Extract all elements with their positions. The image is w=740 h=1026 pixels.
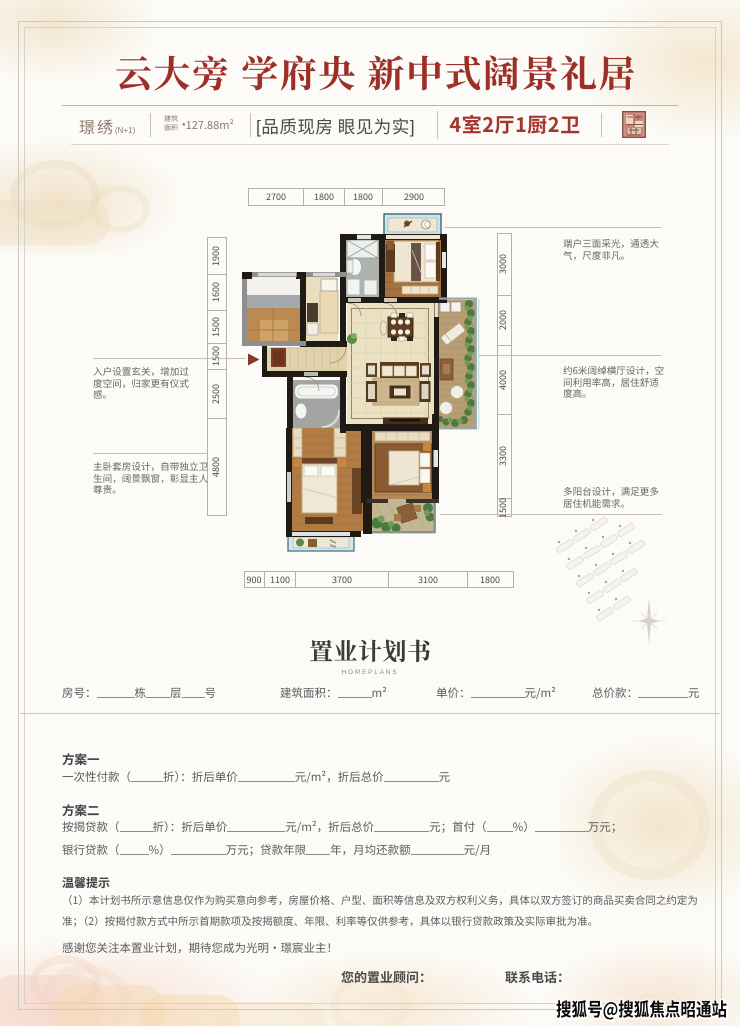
svg-text:900: 900	[247, 573, 262, 586]
svg-text:2500: 2500	[209, 384, 222, 404]
svg-text:2900: 2900	[404, 190, 424, 203]
svg-text:2700: 2700	[266, 190, 286, 203]
svg-text:3000: 3000	[496, 254, 509, 274]
svg-text:1500: 1500	[209, 346, 222, 366]
svg-text:1600: 1600	[209, 282, 222, 302]
svg-text:3700: 3700	[332, 573, 352, 586]
svg-text:3100: 3100	[418, 573, 438, 586]
svg-text:1800: 1800	[480, 573, 500, 586]
svg-text:3300: 3300	[496, 446, 509, 466]
svg-text:1500: 1500	[209, 317, 222, 337]
svg-text:1900: 1900	[209, 246, 222, 266]
svg-text:1800: 1800	[314, 190, 334, 203]
svg-text:2000: 2000	[496, 310, 509, 330]
svg-text:4000: 4000	[496, 370, 509, 390]
svg-text:1800: 1800	[353, 190, 373, 203]
svg-text:1100: 1100	[270, 573, 290, 586]
